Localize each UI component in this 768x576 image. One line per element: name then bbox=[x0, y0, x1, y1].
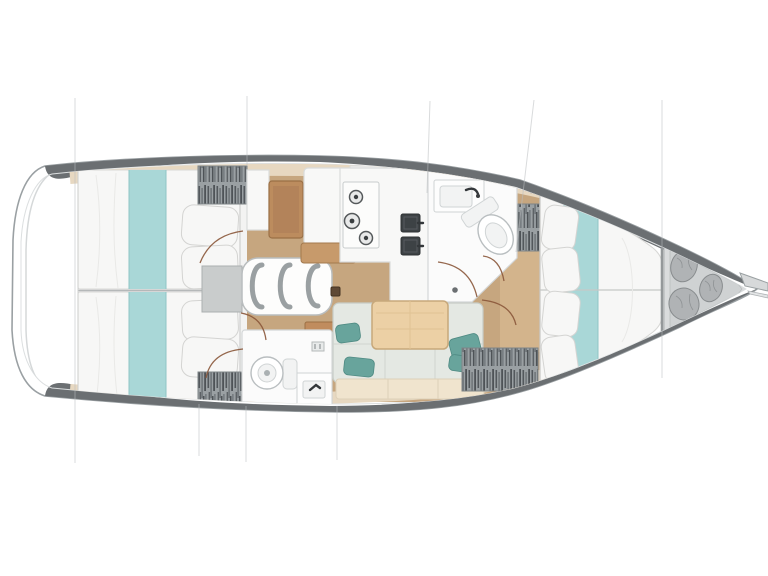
pillow bbox=[541, 290, 581, 338]
floor-hatch bbox=[331, 287, 340, 296]
anchor-locker bbox=[664, 242, 750, 336]
table-post bbox=[452, 287, 458, 293]
pillow bbox=[540, 204, 580, 252]
washbasin bbox=[303, 381, 325, 398]
chart-table-top bbox=[273, 186, 299, 233]
companionway-landing bbox=[202, 266, 242, 312]
bed-runner bbox=[129, 292, 166, 405]
throw-pillow bbox=[335, 322, 361, 343]
faucet-icon bbox=[476, 194, 480, 198]
toilet-icon bbox=[251, 357, 283, 389]
throw-pillow bbox=[343, 356, 375, 377]
vent-grille bbox=[312, 342, 324, 351]
bed-runner bbox=[129, 170, 166, 289]
aft-head bbox=[242, 330, 332, 410]
companionway bbox=[202, 258, 332, 315]
hanging-locker bbox=[198, 166, 247, 204]
nav-cabinet bbox=[247, 170, 269, 230]
pillow bbox=[541, 246, 581, 294]
toilet-cistern bbox=[283, 359, 297, 389]
nav-seat bbox=[304, 168, 345, 245]
boat-floor-plan bbox=[0, 0, 768, 576]
pillow bbox=[181, 204, 240, 248]
